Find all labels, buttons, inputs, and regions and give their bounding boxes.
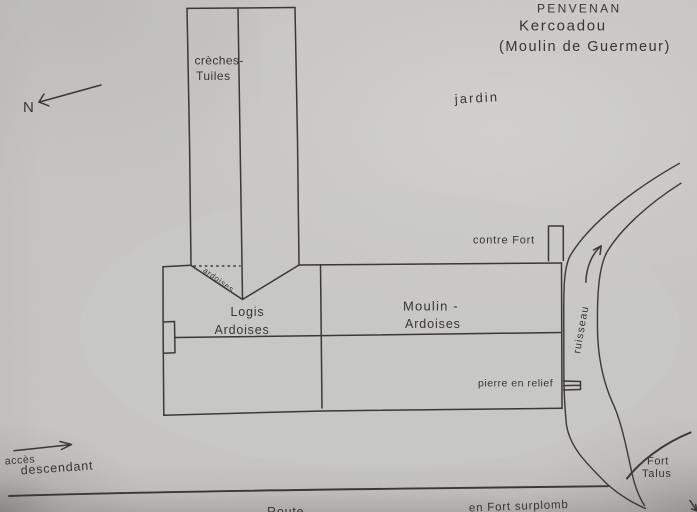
svg-text:N: N: [23, 99, 34, 116]
svg-text:contre Fort: contre Fort: [473, 235, 535, 247]
svg-text:(Moulin de Guermeur): (Moulin de Guermeur): [499, 39, 671, 55]
svg-text:Ardoises: Ardoises: [405, 317, 461, 331]
svg-text:Ardoises: Ardoises: [215, 323, 270, 337]
svg-text:Kercoadou: Kercoadou: [519, 18, 607, 35]
svg-text:Logis: Logis: [231, 305, 265, 319]
svg-text:Talus: Talus: [642, 468, 672, 480]
svg-text:Moulin -: Moulin -: [403, 299, 459, 314]
svg-text:pierre en relief: pierre en relief: [478, 378, 553, 390]
svg-text:Fort: Fort: [647, 456, 669, 468]
svg-text:jardin: jardin: [453, 89, 499, 106]
svg-text:PENVENAN: PENVENAN: [537, 2, 621, 16]
svg-text:Route: Route: [267, 505, 304, 512]
svg-text:Tuiles: Tuiles: [196, 69, 231, 83]
svg-text:crèches-: crèches-: [195, 54, 244, 68]
